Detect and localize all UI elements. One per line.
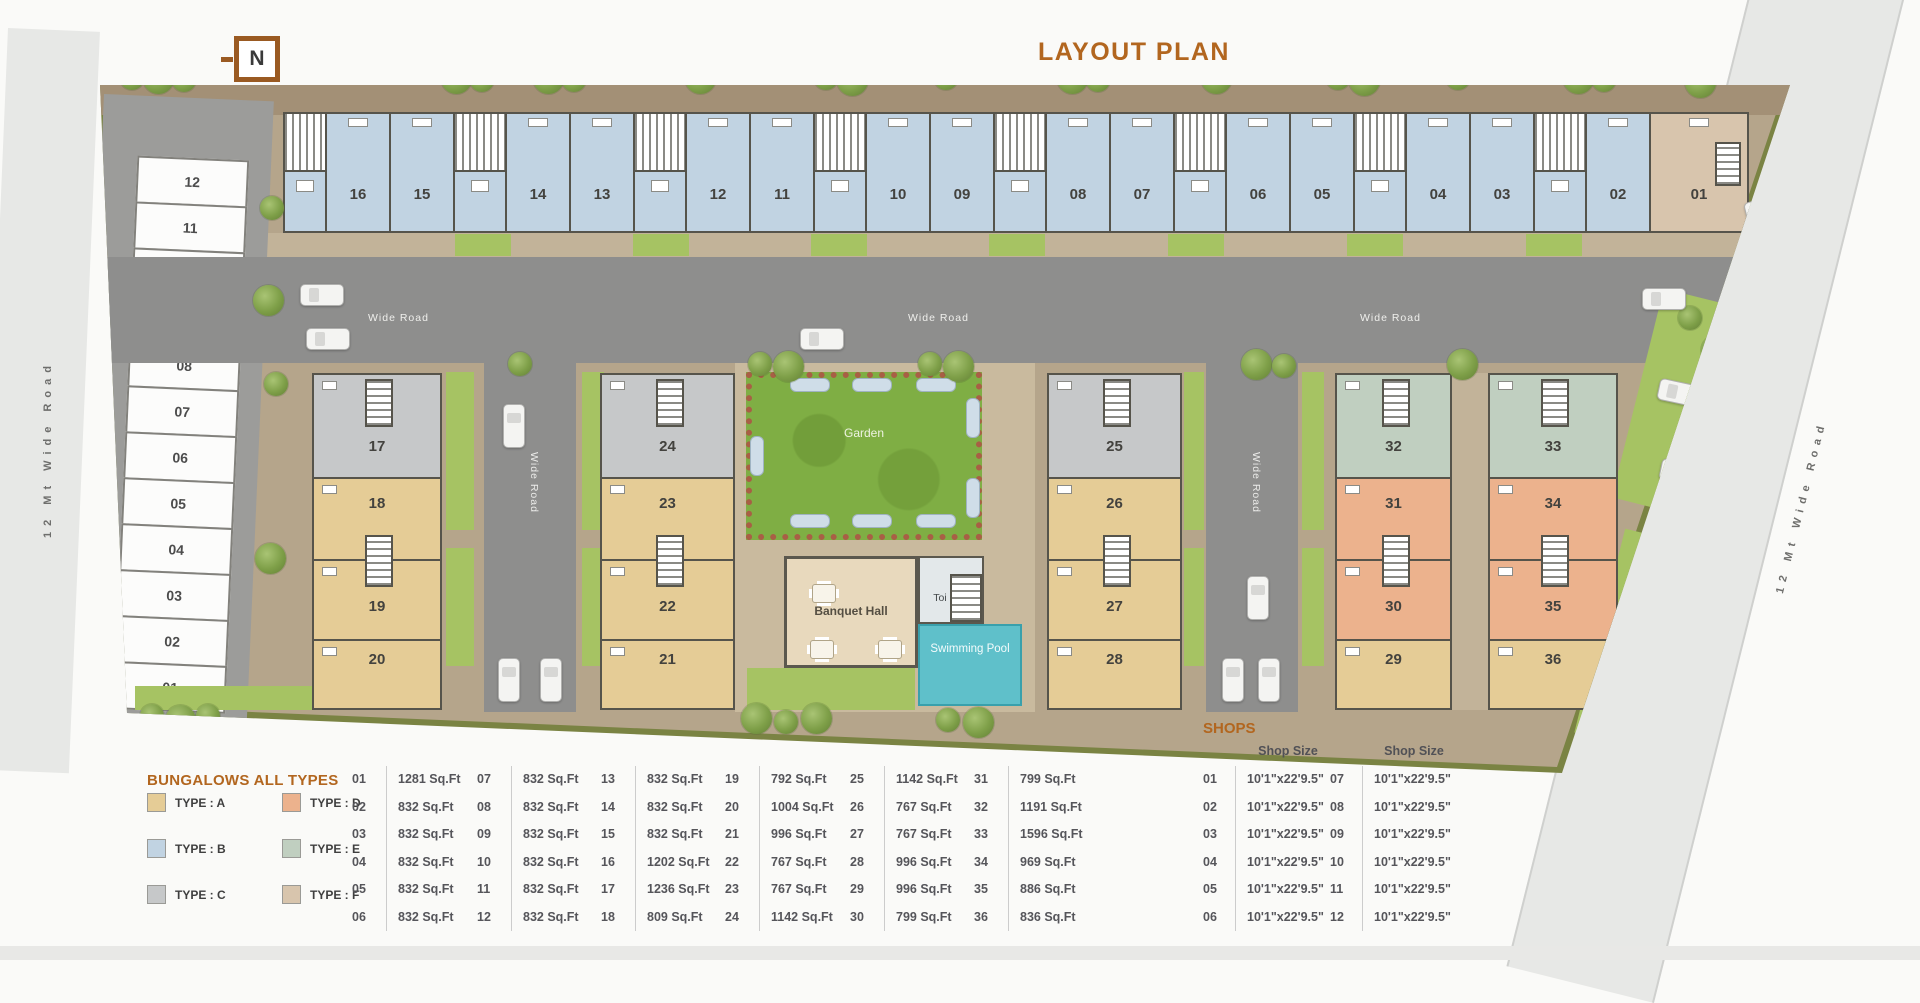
car-window	[1262, 667, 1276, 677]
bungalow-unit: 15	[391, 114, 453, 231]
lawn-patch	[446, 372, 474, 530]
unit-number-cell: 11	[477, 876, 511, 904]
shop-slot-list: 121110090807060504030201	[113, 158, 249, 714]
unit-size-cell: 832 Sq.Ft	[635, 766, 721, 794]
bungalow-number: 32	[1337, 438, 1450, 455]
unit-number-cell: 03	[352, 821, 386, 849]
garden-bench-icon	[966, 478, 980, 518]
car-icon	[540, 658, 562, 702]
table-column: 19792 Sq.Ft201004 Sq.Ft21996 Sq.Ft22767 …	[725, 766, 845, 931]
unit-number-cell: 33	[974, 821, 1008, 849]
banquet-hall-label: Banquet Hall	[784, 604, 918, 618]
tree-icon	[773, 351, 804, 382]
shop-slot: 02	[115, 615, 229, 668]
shops-parking-strip: 121110090807060504030201	[77, 94, 274, 723]
staircase-icon	[1382, 379, 1410, 427]
unit-size-cell: 832 Sq.Ft	[511, 821, 597, 849]
unit-number-cell: 36	[974, 904, 1008, 932]
stair-porch	[1535, 172, 1585, 231]
road-label: Wide Road	[368, 312, 429, 324]
bungalow-number: 20	[314, 651, 440, 668]
shop-size-cell: 10'1"x22'9.5"	[1235, 876, 1335, 904]
legend-item: TYPE : D	[282, 793, 361, 812]
car-icon	[1642, 288, 1686, 310]
tree-icon	[1326, 66, 1350, 90]
unit-size-cell: 886 Sq.Ft	[1008, 876, 1094, 904]
bungalow-unit: 02	[1587, 114, 1649, 231]
staircase-icon	[1715, 142, 1741, 186]
car-window	[809, 332, 819, 346]
bungalow-number: 33	[1490, 438, 1616, 455]
tree-icon	[1272, 354, 1296, 378]
bungalow-number: 36	[1490, 651, 1616, 668]
shop-number-cell: 10	[1330, 849, 1362, 877]
tree-icon	[1057, 63, 1088, 94]
bungalow-number: 29	[1337, 651, 1450, 668]
bungalow-unit: 06	[1227, 114, 1289, 231]
unit-number-cell: 22	[725, 849, 759, 877]
shop-number-cell: 03	[1203, 821, 1235, 849]
tree-icon	[741, 703, 772, 734]
car-icon	[306, 328, 350, 350]
staircase-icon	[455, 114, 505, 231]
unit-size-cell: 832 Sq.Ft	[386, 821, 472, 849]
page-title: LAYOUT PLAN	[1038, 38, 1230, 67]
tree-icon	[774, 710, 798, 734]
unit-size-cell: 996 Sq.Ft	[884, 849, 970, 877]
shop-number-cell: 11	[1330, 876, 1362, 904]
staircase-icon	[815, 114, 865, 231]
tree-icon	[508, 352, 532, 376]
bungalow-number: 17	[314, 438, 440, 455]
legend-swatch	[147, 885, 166, 904]
bungalow-unit: 04	[1407, 114, 1469, 231]
stair-hatch	[815, 114, 865, 172]
swimming-pool-area	[918, 624, 1022, 706]
unit-number-cell: 01	[352, 766, 386, 794]
tree-icon	[562, 68, 586, 92]
bungalow-cluster: 25262728	[1047, 373, 1182, 710]
tree-icon	[260, 196, 284, 220]
unit-size-cell: 832 Sq.Ft	[635, 794, 721, 822]
table-column: 07832 Sq.Ft08832 Sq.Ft09832 Sq.Ft10832 S…	[477, 766, 597, 931]
unit-number-cell: 34	[974, 849, 1008, 877]
car-window	[502, 667, 516, 677]
shop-slot: 05	[121, 477, 235, 530]
tree-icon	[1563, 63, 1594, 94]
unit-number-cell: 26	[850, 794, 884, 822]
unit-number-cell: 14	[601, 794, 635, 822]
tree-icon	[801, 703, 832, 734]
car-window	[507, 413, 521, 423]
bungalow-unit: 09	[931, 114, 993, 231]
north-dash	[221, 57, 233, 62]
bungalow-number: 12	[710, 186, 727, 203]
bungalow-number: 15	[414, 186, 431, 203]
north-indicator-icon: N	[234, 36, 280, 82]
bungalow-number: 05	[1314, 186, 1331, 203]
left-road-label: 12 Mt Wide Road	[42, 360, 54, 538]
stair-hatch	[455, 114, 505, 172]
unit-size-cell: 832 Sq.Ft	[511, 904, 597, 932]
legend-swatch	[147, 793, 166, 812]
tree-icon	[1685, 67, 1716, 98]
unit-size-cell: 809 Sq.Ft	[635, 904, 721, 932]
table-column: 31799 Sq.Ft321191 Sq.Ft331596 Sq.Ft34969…	[974, 766, 1094, 931]
unit-number-cell: 05	[352, 876, 386, 904]
staircase-icon	[1541, 379, 1569, 427]
tree-icon	[936, 708, 960, 732]
north-letter: N	[249, 47, 264, 71]
unit-size-cell: 799 Sq.Ft	[1008, 766, 1094, 794]
unit-size-cell: 832 Sq.Ft	[386, 904, 472, 932]
lawn-patch	[1168, 234, 1224, 256]
car-window	[1251, 585, 1265, 595]
table-column: 0710'1"x22'9.5"0810'1"x22'9.5"0910'1"x22…	[1330, 766, 1462, 931]
car-window	[1651, 292, 1661, 306]
bungalow-number: 14	[530, 186, 547, 203]
staircase-icon	[365, 379, 393, 427]
unit-size-cell: 832 Sq.Ft	[511, 849, 597, 877]
dining-table-icon	[810, 640, 834, 659]
stair-porch	[1175, 172, 1225, 231]
staircase-icon	[1535, 114, 1585, 231]
bungalow-cluster: 17181920	[312, 373, 442, 710]
shop-slot: 06	[123, 431, 237, 484]
bungalow-number: 07	[1134, 186, 1151, 203]
car-icon	[503, 404, 525, 448]
car-window	[315, 332, 325, 346]
unit-size-cell: 832 Sq.Ft	[511, 876, 597, 904]
shop-size-cell: 10'1"x22'9.5"	[1362, 794, 1462, 822]
bungalow-number: 28	[1049, 651, 1180, 668]
unit-number-cell: 21	[725, 821, 759, 849]
tree-icon	[120, 66, 144, 90]
bungalow-number: 03	[1494, 186, 1511, 203]
unit-size-cell: 1596 Sq.Ft	[1008, 821, 1094, 849]
shop-size-cell: 10'1"x22'9.5"	[1235, 821, 1335, 849]
unit-size-cell: 1191 Sq.Ft	[1008, 794, 1094, 822]
unit-number-cell: 08	[477, 794, 511, 822]
staircase-icon	[656, 379, 684, 427]
bungalow-cluster: 24232221	[600, 373, 735, 710]
unit-number-cell: 04	[352, 849, 386, 877]
unit-number-cell: 06	[352, 904, 386, 932]
bungalow-number: 35	[1490, 598, 1616, 615]
unit-number-cell: 23	[725, 876, 759, 904]
bungalow-number: 21	[602, 651, 733, 668]
lawn-patch	[989, 234, 1045, 256]
bungalow-number: 10	[890, 186, 907, 203]
tree-icon	[748, 352, 772, 376]
tree-icon	[1086, 68, 1110, 92]
bungalow-unit: 07	[1111, 114, 1173, 231]
bungalow-number: 01	[1691, 186, 1708, 203]
stair-porch	[1355, 172, 1405, 231]
unit-number-cell: 20	[725, 794, 759, 822]
lawn-patch	[135, 686, 320, 710]
bungalow-unit: 20	[314, 641, 440, 708]
bungalow-number: 23	[602, 495, 733, 512]
stair-porch	[815, 172, 865, 231]
unit-size-cell: 767 Sq.Ft	[759, 876, 845, 904]
unit-number-cell: 31	[974, 766, 1008, 794]
bungalow-unit: 03	[1471, 114, 1533, 231]
legend-swatch	[147, 839, 166, 858]
unit-size-cell: 832 Sq.Ft	[635, 821, 721, 849]
unit-size-cell: 836 Sq.Ft	[1008, 904, 1094, 932]
garden-bench-icon	[790, 378, 830, 392]
garden-bench-icon	[852, 514, 892, 528]
side-path	[1452, 373, 1488, 710]
tree-icon	[255, 543, 286, 574]
unit-number-cell: 32	[974, 794, 1008, 822]
unit-size-cell: 832 Sq.Ft	[511, 794, 597, 822]
legend-swatch	[282, 839, 301, 858]
stair-hatch	[1175, 114, 1225, 172]
bungalow-number: 34	[1490, 495, 1616, 512]
road-label: Wide Road	[1360, 312, 1421, 324]
unit-size-cell: 832 Sq.Ft	[511, 766, 597, 794]
stair-hatch	[1355, 114, 1405, 172]
tree-icon	[264, 372, 288, 396]
tree-icon	[441, 63, 472, 94]
bungalow-number: 24	[602, 438, 733, 455]
bungalow-number: 22	[602, 598, 733, 615]
shop-size-cell: 10'1"x22'9.5"	[1235, 794, 1335, 822]
unit-number-cell: 10	[477, 849, 511, 877]
stair-hatch	[285, 114, 325, 172]
car-icon	[1258, 658, 1280, 702]
staircase-icon	[1175, 114, 1225, 231]
tree-icon	[934, 66, 958, 90]
shop-slot: 07	[125, 385, 239, 438]
shop-number-cell: 08	[1330, 794, 1362, 822]
unit-size-cell: 969 Sq.Ft	[1008, 849, 1094, 877]
bungalow-number: 04	[1430, 186, 1447, 203]
car-icon	[498, 658, 520, 702]
car-icon	[1222, 658, 1244, 702]
unit-size-cell: 767 Sq.Ft	[884, 794, 970, 822]
lawn-patch	[633, 234, 689, 256]
staircase-icon	[656, 535, 684, 587]
tree-icon	[814, 66, 838, 90]
unit-number-cell: 07	[477, 766, 511, 794]
car-icon	[1247, 576, 1269, 620]
shop-size-cell: 10'1"x22'9.5"	[1235, 904, 1335, 932]
tree-icon	[140, 704, 164, 728]
lawn-patch	[1184, 372, 1204, 530]
unit-size-cell: 767 Sq.Ft	[884, 821, 970, 849]
unit-size-cell: 832 Sq.Ft	[386, 794, 472, 822]
stair-porch	[455, 172, 505, 231]
shop-slot: 12	[135, 156, 249, 209]
staircase-icon	[1103, 535, 1131, 587]
tree-icon	[918, 352, 942, 376]
shop-size-cell: 10'1"x22'9.5"	[1362, 876, 1462, 904]
legend-item: TYPE : B	[147, 839, 226, 858]
legend-label: TYPE : A	[175, 796, 225, 810]
table-column: 251142 Sq.Ft26767 Sq.Ft27767 Sq.Ft28996 …	[850, 766, 970, 931]
bungalow-number: 31	[1337, 495, 1450, 512]
bungalow-unit: 14	[507, 114, 569, 231]
tree-icon	[165, 705, 196, 736]
shop-size-header: Shop Size	[1240, 744, 1336, 758]
tree-icon	[1241, 349, 1272, 380]
staircase-icon	[285, 114, 325, 231]
table-column: 011281 Sq.Ft02832 Sq.Ft03832 Sq.Ft04832 …	[352, 766, 472, 931]
unit-number-cell: 17	[601, 876, 635, 904]
shop-number-cell: 02	[1203, 794, 1235, 822]
bungalow-unit: 05	[1291, 114, 1353, 231]
unit-number-cell: 28	[850, 849, 884, 877]
shop-size-cell: 10'1"x22'9.5"	[1362, 849, 1462, 877]
unit-size-cell: 996 Sq.Ft	[884, 876, 970, 904]
shop-size-cell: 10'1"x22'9.5"	[1235, 849, 1335, 877]
garden-bench-icon	[916, 514, 956, 528]
car-icon	[800, 328, 844, 350]
garden-bench-icon	[852, 378, 892, 392]
unit-size-cell: 1142 Sq.Ft	[884, 766, 970, 794]
garden-label: Garden	[746, 426, 982, 440]
lawn-patch	[446, 548, 474, 666]
shop-size-header: Shop Size	[1366, 744, 1462, 758]
unit-number-cell: 13	[601, 766, 635, 794]
unit-number-cell: 27	[850, 821, 884, 849]
unit-number-cell: 29	[850, 876, 884, 904]
unit-number-cell: 15	[601, 821, 635, 849]
unit-size-cell: 792 Sq.Ft	[759, 766, 845, 794]
unit-number-cell: 19	[725, 766, 759, 794]
stair-porch	[635, 172, 685, 231]
unit-number-cell: 16	[601, 849, 635, 877]
bungalow-unit: 21	[602, 641, 733, 708]
tree-icon	[196, 704, 220, 728]
road-label: Wide Road	[528, 452, 540, 513]
main-road	[100, 257, 1800, 363]
bungalow-unit: 11	[751, 114, 813, 231]
lawn-patch	[1184, 548, 1204, 666]
car-icon	[300, 284, 344, 306]
swimming-pool-label: Swimming Pool	[922, 642, 1018, 657]
table-column: 0110'1"x22'9.5"0210'1"x22'9.5"0310'1"x22…	[1203, 766, 1335, 931]
bungalow-number: 19	[314, 598, 440, 615]
bungalow-number: 13	[594, 186, 611, 203]
bungalow-number: 06	[1250, 186, 1267, 203]
shop-number-cell: 05	[1203, 876, 1235, 904]
bungalow-unit: 12	[687, 114, 749, 231]
stair-hatch	[995, 114, 1045, 172]
staircase-icon	[365, 535, 393, 587]
car-window	[1226, 667, 1240, 677]
legend-label: TYPE : B	[175, 842, 226, 856]
shop-size-cell: 10'1"x22'9.5"	[1362, 766, 1462, 794]
legend-item: TYPE : F	[282, 885, 359, 904]
table-column: 13832 Sq.Ft14832 Sq.Ft15832 Sq.Ft161202 …	[601, 766, 721, 931]
stair-porch	[995, 172, 1045, 231]
legend-title: BUNGALOWS ALL TYPES	[147, 772, 339, 789]
unit-size-cell: 1142 Sq.Ft	[759, 904, 845, 932]
bungalow-top-row: 16151413121110090807060504030201	[283, 112, 1749, 233]
shop-slot: 04	[119, 523, 233, 576]
bungalow-unit: 01	[1651, 114, 1747, 231]
road-label: Wide Road	[1250, 452, 1262, 513]
bungalow-number: 25	[1049, 438, 1180, 455]
unit-size-cell: 1236 Sq.Ft	[635, 876, 721, 904]
bungalow-number: 02	[1610, 186, 1627, 203]
staircase-icon	[1382, 535, 1410, 587]
bungalow-cluster: 33343536	[1488, 373, 1618, 710]
tree-icon	[470, 68, 494, 92]
stair-porch	[285, 172, 325, 231]
tree-icon	[253, 285, 284, 316]
bungalow-unit: 29	[1337, 641, 1450, 708]
legend-swatch	[282, 793, 301, 812]
bungalow-number: 11	[774, 186, 790, 203]
unit-size-cell: 1281 Sq.Ft	[386, 766, 472, 794]
shop-number-cell: 01	[1203, 766, 1235, 794]
dining-table-icon	[812, 584, 836, 603]
shop-number-cell: 04	[1203, 849, 1235, 877]
bungalow-number: 18	[314, 495, 440, 512]
bottom-strip	[0, 946, 1920, 960]
bungalow-cluster: 32313029	[1335, 373, 1452, 710]
tree-icon	[837, 65, 868, 96]
tree-icon	[533, 63, 564, 94]
unit-size-cell: 832 Sq.Ft	[386, 849, 472, 877]
shop-number-cell: 09	[1330, 821, 1362, 849]
bungalow-number: 30	[1337, 598, 1450, 615]
lawn-patch	[1302, 372, 1324, 530]
bungalow-number: 08	[1070, 186, 1087, 203]
unit-number-cell: 24	[725, 904, 759, 932]
shop-size-cell: 10'1"x22'9.5"	[1235, 766, 1335, 794]
bungalow-unit: 10	[867, 114, 929, 231]
staircase-icon	[1541, 535, 1569, 587]
stair-hatch	[1535, 114, 1585, 172]
unit-number-cell: 25	[850, 766, 884, 794]
toilet-label: Toi	[918, 592, 962, 604]
bungalow-number: 16	[350, 186, 367, 203]
shop-slot: 11	[133, 201, 247, 254]
unit-size-cell: 832 Sq.Ft	[386, 876, 472, 904]
staircase-icon	[1355, 114, 1405, 231]
bungalow-unit: 08	[1047, 114, 1109, 231]
staircase-icon	[995, 114, 1045, 231]
bungalow-number: 09	[954, 186, 971, 203]
unit-size-cell: 1202 Sq.Ft	[635, 849, 721, 877]
lawn-patch	[811, 234, 867, 256]
tree-icon	[1592, 68, 1616, 92]
unit-number-cell: 18	[601, 904, 635, 932]
unit-size-cell: 996 Sq.Ft	[759, 821, 845, 849]
tree-icon	[143, 63, 174, 94]
shop-size-cell: 10'1"x22'9.5"	[1362, 821, 1462, 849]
tree-icon	[963, 707, 994, 738]
garden-bench-icon	[790, 514, 830, 528]
tree-icon	[1446, 66, 1470, 90]
car-window	[544, 667, 558, 677]
unit-number-cell: 02	[352, 794, 386, 822]
road-label: Wide Road	[908, 312, 969, 324]
internal-road-right	[1206, 362, 1298, 712]
legend-label: TYPE : C	[175, 888, 226, 902]
shop-number-cell: 12	[1330, 904, 1362, 932]
stair-hatch	[635, 114, 685, 172]
legend-item: TYPE : E	[282, 839, 360, 858]
shop-number-cell: 07	[1330, 766, 1362, 794]
unit-number-cell: 35	[974, 876, 1008, 904]
